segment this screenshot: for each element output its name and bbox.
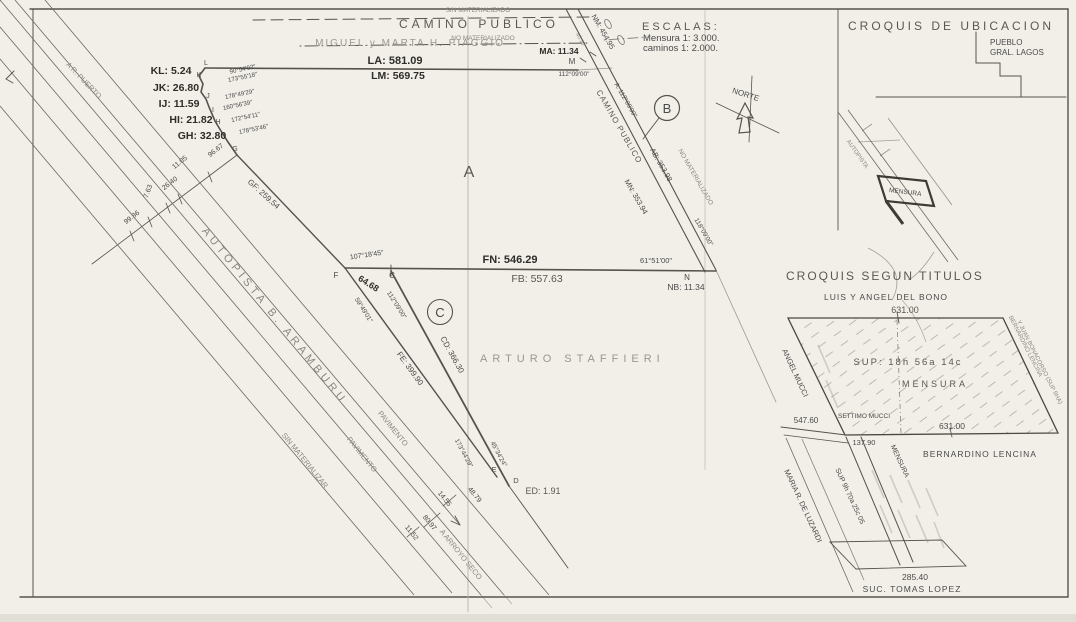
g-cross-measures: 96.67 11.05 26.40 7.63 99.86 bbox=[123, 143, 225, 226]
ubicacion-title: CROQUIS DE UBICACION bbox=[848, 19, 1054, 33]
titulos-mensura-label: MENSURA bbox=[902, 379, 968, 389]
left-length-54760: 547.60 bbox=[794, 416, 819, 425]
a-r-puerto-label: A R. PUERTO bbox=[64, 60, 103, 100]
autopista-name-label: AUTOPISTA B. ARAMBURU bbox=[199, 225, 349, 406]
pavimento-label-2: PAVIMENTO bbox=[345, 435, 379, 474]
angle-N-label: 61°51'00" bbox=[640, 256, 672, 265]
point-F-label: F bbox=[334, 271, 339, 280]
titulos-bottom-length: 631.00 bbox=[939, 421, 965, 431]
west-angle-labels: 90°54'02" 173°55'18" 178°49'29" 160°56'3… bbox=[222, 63, 269, 136]
point-K-label: K bbox=[197, 72, 202, 79]
boundary-D-extension bbox=[509, 486, 568, 568]
survey-sheet: CAMINO PUBLICO S/N MATERIALIZADO NO MATE… bbox=[0, 0, 1076, 622]
boundary-FE bbox=[345, 268, 497, 477]
parcel-C-letter: C bbox=[435, 305, 444, 320]
point-J-label: J bbox=[206, 93, 210, 100]
fn-length-label: FN: 546.29 bbox=[482, 254, 537, 266]
mn-length-label: MN: 353.94 bbox=[623, 178, 650, 216]
puerto-arrow-icon bbox=[6, 71, 14, 83]
survey-drawing: CAMINO PUBLICO S/N MATERIALIZADO NO MATE… bbox=[0, 0, 1076, 622]
north-compass: NORTE bbox=[716, 76, 779, 142]
a-arroyo-seco-label: A ARROYO SECO bbox=[438, 527, 484, 581]
bernardino-lencina-label: BERNARDINO LENCINA bbox=[923, 449, 1037, 459]
fc-length-label: 64.68 bbox=[356, 273, 380, 293]
point-H-label: H bbox=[215, 119, 220, 126]
settimo-mucci-label: SETTIMO MUCCI bbox=[838, 413, 890, 420]
angle-F-label: 107°18'45" bbox=[349, 249, 384, 262]
hi-label: HI: 21.82 bbox=[169, 114, 212, 126]
fe-length-label: FE: 399.90 bbox=[395, 350, 426, 387]
staffieri-label: ARTURO STAFFIERI bbox=[480, 353, 665, 365]
point-I-label: I bbox=[212, 107, 214, 114]
camino-publico-label: CAMINO PUBLICO bbox=[399, 17, 559, 31]
la-length-label: LA: 581.09 bbox=[367, 55, 422, 67]
nm-length-label: NM: 454.95 bbox=[590, 13, 617, 51]
escalas-title: ESCALAS: bbox=[642, 21, 720, 33]
angle-H-label: 172°54'11" bbox=[231, 111, 261, 124]
lm-length-label: LM: 569.75 bbox=[371, 70, 425, 82]
ubicacion-mensura-label: MENSURA bbox=[889, 187, 923, 198]
piaggio-owner-label: MIGUEL y MARTA H. PIAGGIO bbox=[315, 38, 505, 49]
materializado-top-label: S/N MATERIALIZADO bbox=[446, 7, 511, 14]
jk-label: JK: 26.80 bbox=[153, 82, 199, 94]
boundary-CD bbox=[391, 271, 509, 486]
titulos-title: CROQUIS SEGUN TITULOS bbox=[786, 269, 984, 283]
gh-label: GH: 32.80 bbox=[178, 130, 227, 142]
boundary-MA bbox=[578, 68, 612, 70]
point-G-label: G bbox=[232, 146, 237, 153]
point-L-label: L bbox=[204, 60, 208, 67]
angle-G-label: 178°53'46" bbox=[238, 123, 269, 136]
road-materializado-label: NO MATERIALIZADO bbox=[676, 148, 714, 206]
measure-8097: 80.97 bbox=[421, 514, 438, 532]
escalas-caminos: caminos 1: 2.000. bbox=[643, 43, 718, 54]
parcel-C-marker: C bbox=[428, 300, 453, 325]
measure-1152: 11.52 bbox=[403, 524, 419, 542]
norte-label: NORTE bbox=[731, 86, 760, 103]
boundary-GF bbox=[237, 155, 345, 268]
scan-edge bbox=[0, 614, 1076, 622]
measure-9986: 99.86 bbox=[123, 210, 141, 226]
parcel-A-letter: A bbox=[464, 164, 475, 181]
titulos-sup-label: SUP: 18h 56a 14c bbox=[853, 357, 962, 368]
angle-C-label: 112°09'00" bbox=[385, 290, 409, 321]
point-E-label: E bbox=[491, 465, 496, 474]
parcel-B-letter: B bbox=[663, 101, 672, 116]
ed-length-label: ED: 1.91 bbox=[525, 486, 560, 496]
camino-publico-diagonal bbox=[566, 9, 776, 402]
ij-label: IJ: 11.59 bbox=[159, 98, 200, 110]
ma-length-label: MA: 11.34 bbox=[539, 46, 578, 56]
west-measure-labels: KL: 5.24 JK: 26.80 IJ: 11.59 HI: 21.82 G… bbox=[151, 65, 227, 142]
pueblo-label-2: GRAL. LAGOS bbox=[990, 48, 1044, 57]
point-M-label: M bbox=[569, 57, 576, 66]
measure-2640: 26.40 bbox=[161, 176, 179, 192]
angle-M-label: 112°09'00" bbox=[559, 70, 591, 78]
ab-length-label: AB: 353.98 bbox=[648, 146, 674, 183]
angle-I-label: 160°56'39" bbox=[222, 99, 253, 112]
kl-label: KL: 5.24 bbox=[151, 65, 192, 77]
fb-length-label: FB: 557.63 bbox=[511, 273, 563, 285]
strip-mensura-label: MENSURA bbox=[889, 444, 910, 479]
cd-length-label: CD: 366.30 bbox=[438, 335, 466, 375]
measure-9667: 96.67 bbox=[207, 143, 225, 159]
angle-FE-label: 59°49'01" bbox=[353, 296, 375, 324]
pueblo-label-1: PUEBLO bbox=[990, 38, 1022, 47]
escalas-block: ESCALAS: Mensura 1: 3.000. caminos 1: 2.… bbox=[642, 21, 720, 54]
bottom-length-28540: 285.40 bbox=[902, 572, 928, 582]
suc-tomas-lopez-label: SUC. TOMAS LOPEZ bbox=[863, 584, 962, 594]
point-N-label: N bbox=[684, 273, 690, 282]
measure-763: 7.63 bbox=[143, 184, 154, 199]
titulos-top-length: 631.00 bbox=[891, 305, 919, 315]
measure-1105: 11.05 bbox=[171, 155, 189, 171]
pavimento-label-1: PAVIMENTO bbox=[376, 409, 410, 448]
ubicacion-autopista-label: AUTOPISTA bbox=[845, 139, 869, 170]
boundary-FN bbox=[345, 268, 716, 271]
del-bono-label: LUIS Y ANGEL DEL BONO bbox=[824, 292, 948, 302]
sup-9h-label: SUP 9h 70a 25c 05 bbox=[833, 467, 865, 525]
nb-length-label: NB: 11.34 bbox=[667, 282, 704, 292]
camino-diagonal-label: CAMINO PUBLICO bbox=[594, 88, 643, 165]
corner-13790-label: 137.90 bbox=[853, 438, 876, 447]
parcel-B-marker: B bbox=[643, 96, 680, 140]
point-D-label: D bbox=[513, 476, 519, 485]
maria-luzardi-label: MARIA R. DE LUZARDI bbox=[782, 468, 824, 544]
autopista-lines bbox=[0, 0, 549, 608]
